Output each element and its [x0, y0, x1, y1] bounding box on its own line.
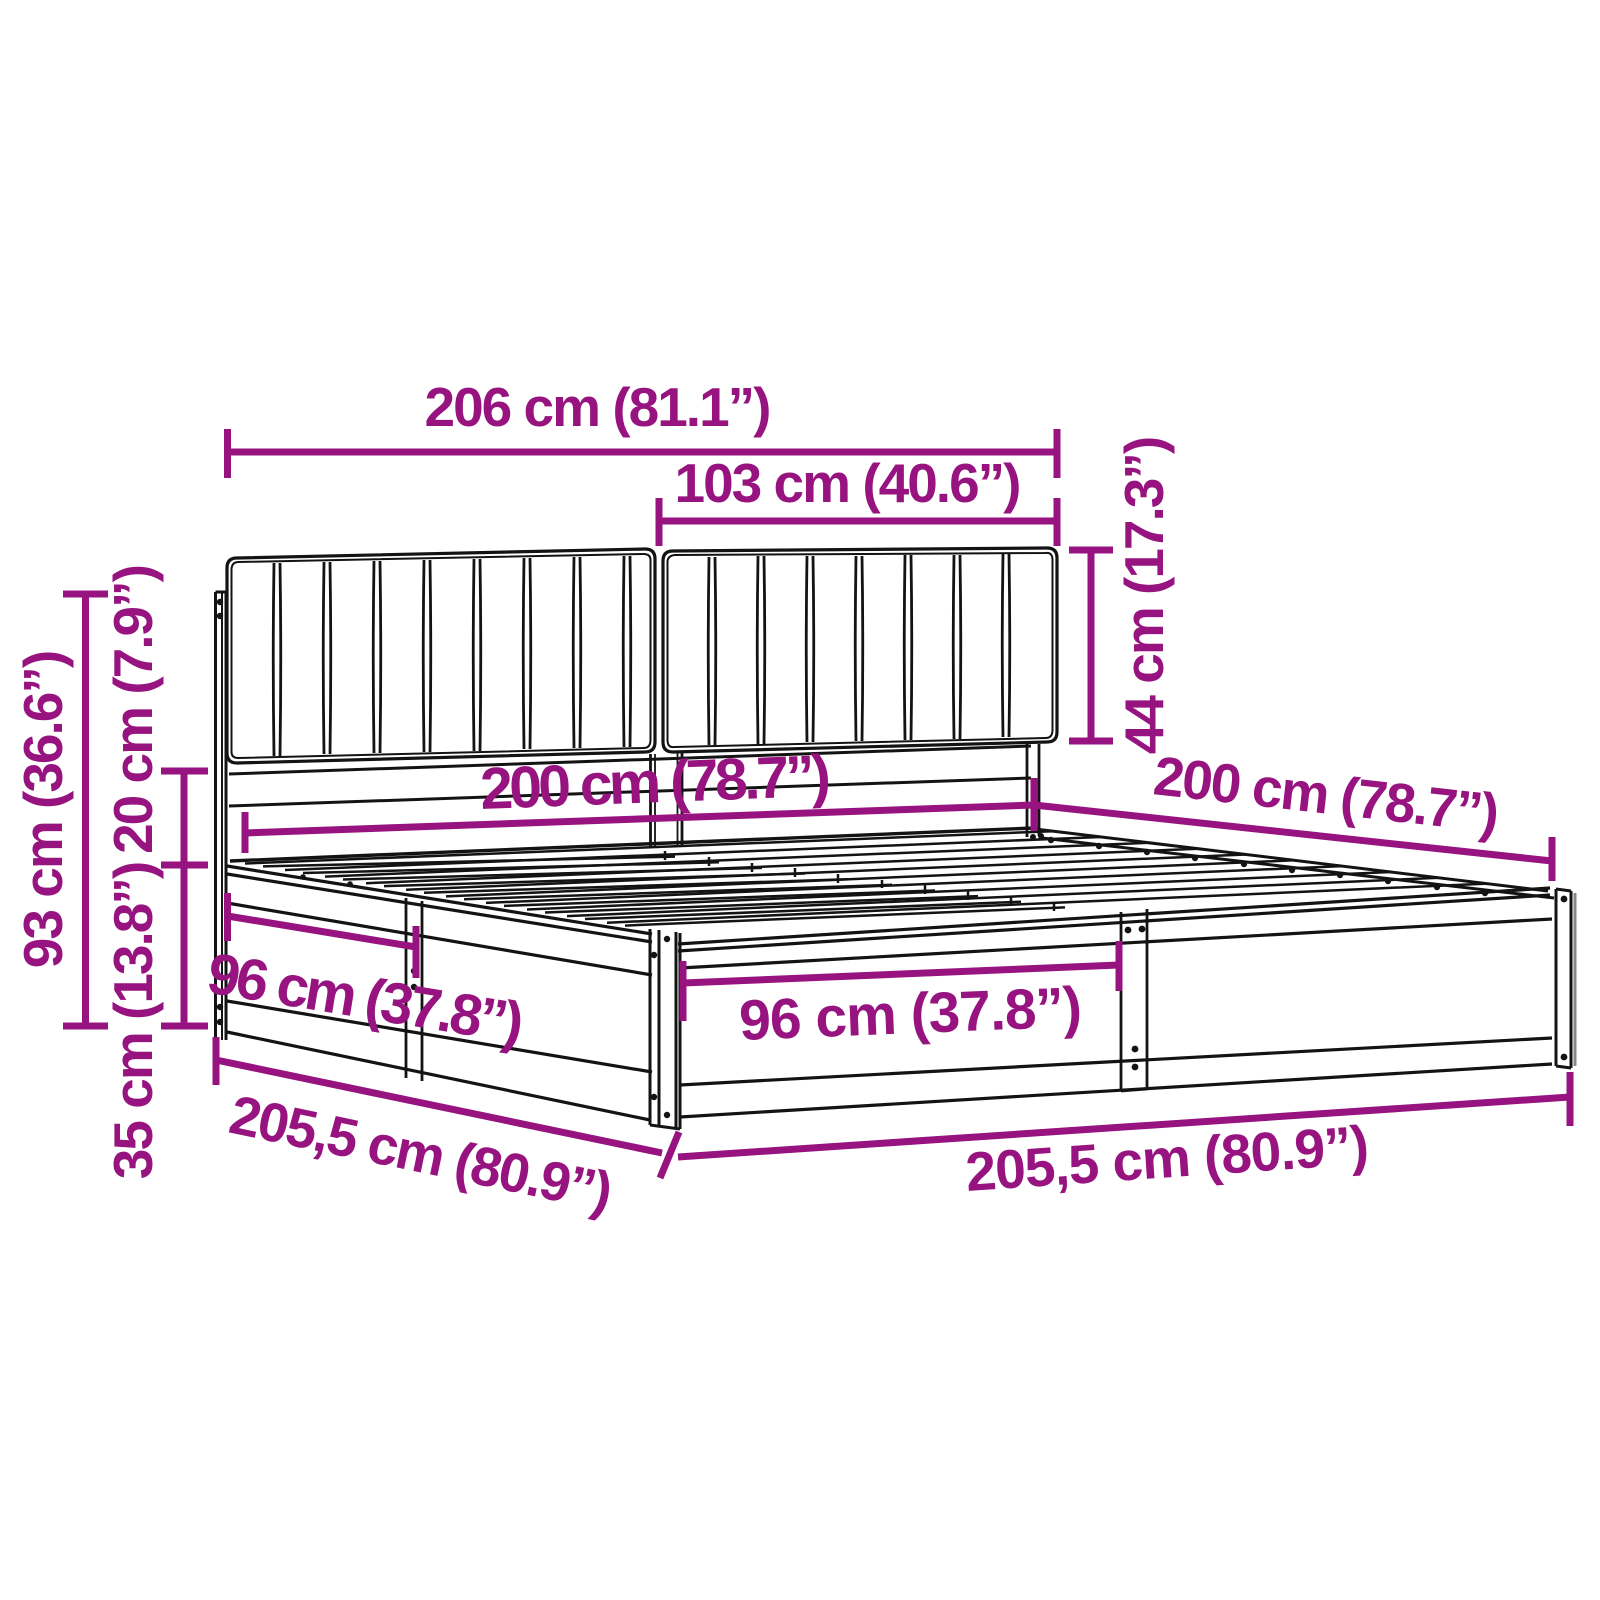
svg-text:35 cm (13.8”): 35 cm (13.8”) [102, 863, 164, 1179]
svg-text:44 cm (17.3”): 44 cm (17.3”) [1113, 438, 1175, 754]
svg-text:96 cm (37.8”): 96 cm (37.8”) [738, 975, 1082, 1053]
svg-text:206 cm (81.1”): 206 cm (81.1”) [425, 376, 770, 438]
svg-text:93 cm (36.6”): 93 cm (36.6”) [12, 652, 74, 968]
svg-text:20 cm (7.9”): 20 cm (7.9”) [102, 566, 164, 854]
svg-text:200 cm (78.7”): 200 cm (78.7”) [479, 743, 829, 822]
svg-text:103 cm (40.6”): 103 cm (40.6”) [675, 452, 1020, 514]
